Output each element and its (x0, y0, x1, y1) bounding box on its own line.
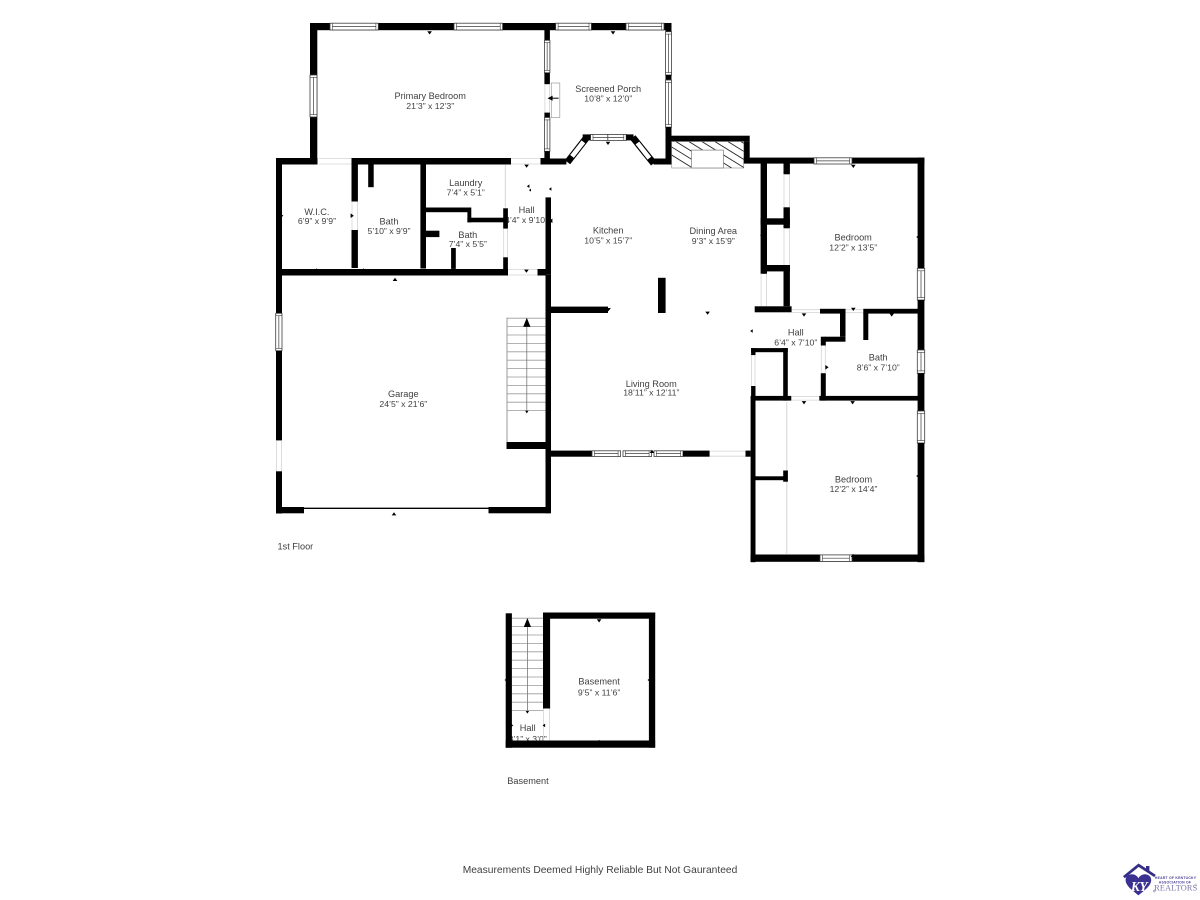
svg-text:7’4” x 5’5”: 7’4” x 5’5” (449, 239, 487, 249)
svg-text:7’4” x 5’1”: 7’4” x 5’1” (447, 187, 485, 197)
svg-text:6’9” x 9’9”: 6’9” x 9’9” (298, 216, 336, 226)
svg-text:1st Floor: 1st Floor (278, 541, 314, 551)
svg-text:Garage: Garage (388, 389, 419, 399)
svg-text:Basement: Basement (578, 677, 620, 687)
svg-text:Dining Area: Dining Area (690, 226, 738, 236)
svg-text:Measurements Deemed Highly Rel: Measurements Deemed Highly Reliable But … (463, 865, 738, 876)
svg-text:5’10” x 9’9”: 5’10” x 9’9” (368, 226, 411, 236)
svg-text:REALTORS: REALTORS (1154, 884, 1197, 893)
svg-text:Bath: Bath (869, 353, 888, 363)
svg-text:Bath: Bath (380, 216, 399, 226)
svg-text:24’5” x 21’6”: 24’5” x 21’6” (379, 399, 427, 409)
svg-text:Bedroom: Bedroom (835, 475, 873, 485)
svg-text:10’8” x 12’0”: 10’8” x 12’0” (584, 94, 632, 104)
svg-text:Bedroom: Bedroom (835, 233, 873, 243)
svg-text:9’3” x 15’9”: 9’3” x 15’9” (692, 236, 735, 246)
svg-text:10’5” x 15’7”: 10’5” x 15’7” (584, 236, 632, 246)
svg-text:Kitchen: Kitchen (593, 226, 624, 236)
svg-text:9’5” x 11’6”: 9’5” x 11’6” (578, 687, 620, 697)
svg-text:Hall: Hall (520, 723, 536, 733)
svg-text:Hall: Hall (519, 205, 535, 215)
svg-text:Screened Porch: Screened Porch (575, 84, 641, 94)
svg-text:12’2” x 13’5”: 12’2” x 13’5” (829, 243, 877, 253)
svg-text:4’4” x 9’10”: 4’4” x 9’10” (505, 215, 548, 225)
svg-text:18’11” x 12’11”: 18’11” x 12’11” (623, 387, 679, 397)
svg-text:Basement: Basement (507, 776, 549, 786)
svg-text:21’3” x 12’3”: 21’3” x 12’3” (406, 101, 454, 111)
svg-text:6’4” x 7’10”: 6’4” x 7’10” (774, 338, 817, 348)
svg-text:8’6” x 7’10”: 8’6” x 7’10” (857, 363, 900, 373)
svg-text:KY: KY (1130, 879, 1150, 894)
svg-text:®: ® (1153, 888, 1156, 893)
svg-text:12’2” x 14’4”: 12’2” x 14’4” (830, 484, 878, 494)
svg-text:Primary Bedroom: Primary Bedroom (394, 91, 466, 101)
svg-text:HEART OF KENTUCKY: HEART OF KENTUCKY (1155, 876, 1197, 880)
svg-text:Hall: Hall (788, 328, 804, 338)
